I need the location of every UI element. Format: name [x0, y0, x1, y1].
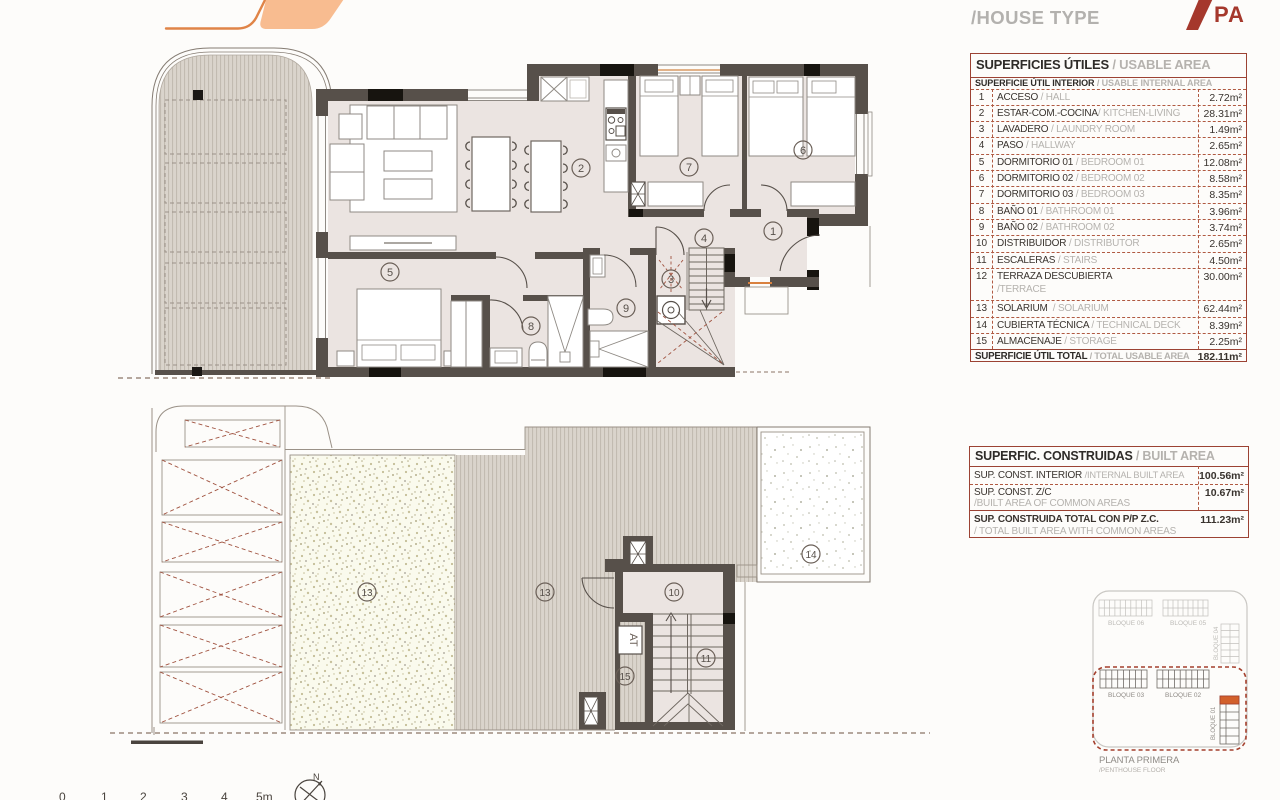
- svg-text:BLOQUE 01: BLOQUE 01: [1211, 706, 1217, 740]
- svg-text:1: 1: [770, 226, 776, 238]
- svg-text:0: 0: [59, 790, 66, 800]
- svg-text:1: 1: [101, 790, 108, 800]
- svg-text:2: 2: [140, 790, 147, 800]
- svg-text:3: 3: [668, 274, 674, 286]
- svg-text:BLOQUE 05: BLOQUE 05: [1170, 620, 1207, 627]
- svg-text:5m: 5m: [256, 790, 273, 800]
- svg-text:PLANTA PRIMERA: PLANTA PRIMERA: [1099, 755, 1180, 766]
- svg-text:3: 3: [181, 790, 188, 800]
- svg-text:9: 9: [623, 303, 629, 315]
- svg-text:BLOQUE 06: BLOQUE 06: [1108, 620, 1145, 627]
- svg-text:BLOQUE 04: BLOQUE 04: [1214, 626, 1220, 660]
- svg-text:2: 2: [578, 163, 584, 175]
- svg-text:AT: AT: [627, 633, 639, 647]
- svg-text:4: 4: [221, 790, 228, 800]
- svg-text:8: 8: [528, 321, 534, 333]
- svg-text:15: 15: [619, 672, 631, 683]
- svg-text:5: 5: [387, 267, 393, 279]
- svg-text:7: 7: [686, 162, 692, 174]
- svg-text:6: 6: [800, 145, 806, 157]
- svg-text:13: 13: [539, 588, 551, 599]
- svg-text:11: 11: [701, 654, 712, 665]
- svg-text:N: N: [313, 772, 320, 782]
- svg-text:BLOQUE 02: BLOQUE 02: [1165, 692, 1202, 699]
- svg-text:/PENTHOUSE FLOOR: /PENTHOUSE FLOOR: [1099, 767, 1166, 774]
- svg-text:10: 10: [668, 588, 680, 599]
- svg-text:13: 13: [361, 588, 373, 599]
- svg-text:14: 14: [805, 550, 817, 561]
- svg-text:BLOQUE 03: BLOQUE 03: [1108, 692, 1145, 699]
- svg-text:4: 4: [701, 233, 707, 245]
